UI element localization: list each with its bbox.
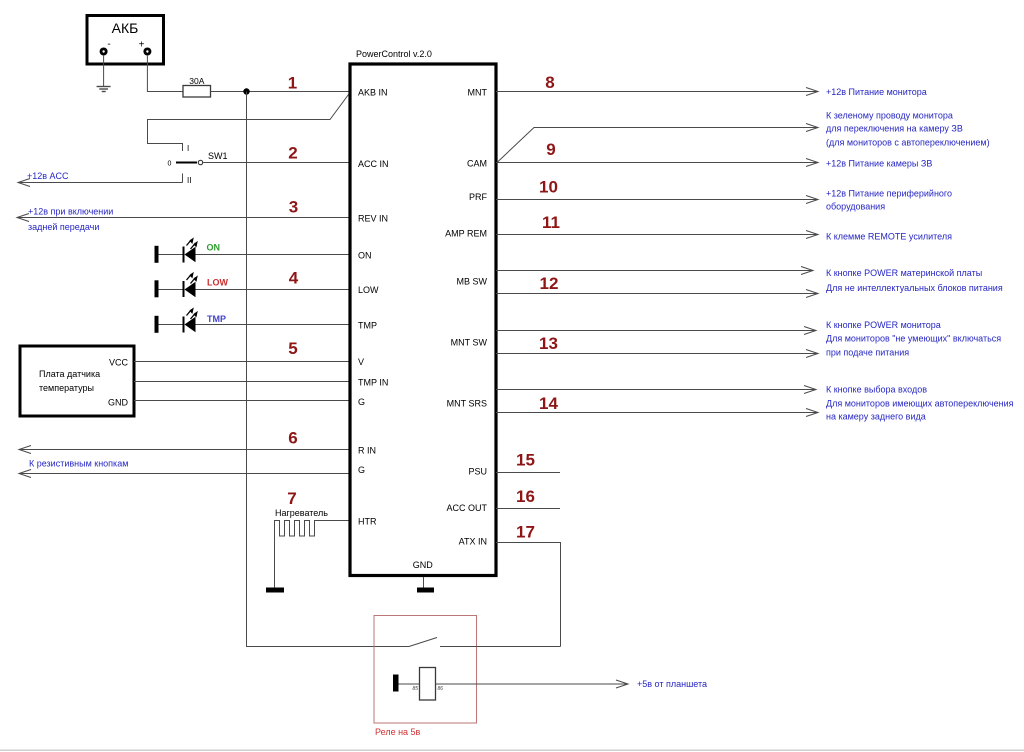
svg-text:К кнопке POWER монитора: К кнопке POWER монитора <box>826 320 941 330</box>
svg-text:8: 8 <box>545 73 554 92</box>
svg-text:+12в Питание периферийного: +12в Питание периферийного <box>826 189 952 199</box>
svg-text:+12в Питание камеры ЗВ: +12в Питание камеры ЗВ <box>826 159 932 169</box>
svg-text:ACC IN: ACC IN <box>358 159 389 169</box>
svg-text:85: 85 <box>412 686 418 692</box>
svg-text:GND: GND <box>413 560 434 570</box>
svg-text:TMP: TMP <box>207 314 226 324</box>
svg-text:VCC: VCC <box>109 358 129 368</box>
svg-text:CAM: CAM <box>467 159 487 169</box>
svg-text:12: 12 <box>540 274 559 293</box>
svg-text:AMP REM: AMP REM <box>445 229 487 239</box>
svg-text:11: 11 <box>542 213 560 232</box>
svg-text:7: 7 <box>287 489 296 508</box>
svg-text:задней передачи: задней передачи <box>28 222 99 232</box>
svg-text:+5в от планшета: +5в от планшета <box>637 679 707 689</box>
svg-text:17: 17 <box>516 523 535 542</box>
svg-text:4: 4 <box>289 269 299 288</box>
svg-text:II: II <box>187 176 191 185</box>
svg-text:ON: ON <box>207 243 221 253</box>
svg-text:Для мониторов "не умеющих" вкл: Для мониторов "не умеющих" включаться <box>826 334 1001 344</box>
svg-text:при подаче питания: при подаче питания <box>826 348 909 358</box>
svg-text:К кнопке выбора входов: К кнопке выбора входов <box>826 385 927 395</box>
svg-text:V: V <box>358 357 364 367</box>
svg-text:Реле на 5в: Реле на 5в <box>375 727 421 737</box>
svg-text:+12в ACC: +12в ACC <box>27 171 69 181</box>
svg-text:13: 13 <box>539 334 558 353</box>
svg-text:86: 86 <box>438 686 444 692</box>
svg-text:+: + <box>139 40 145 51</box>
svg-text:SW1: SW1 <box>208 151 228 161</box>
svg-text:К зеленому проводу монитора: К зеленому проводу монитора <box>826 111 953 121</box>
svg-text:2: 2 <box>288 144 297 163</box>
svg-text:REV IN: REV IN <box>358 214 388 224</box>
svg-text:Для не интеллектуальных блоков: Для не интеллектуальных блоков питания <box>826 283 1003 293</box>
svg-text:G: G <box>358 465 365 475</box>
svg-text:АКБ: АКБ <box>112 20 139 36</box>
svg-text:R IN: R IN <box>358 446 376 456</box>
svg-text:MNT: MNT <box>468 88 488 98</box>
svg-text:+12в при включении: +12в при включении <box>28 207 113 217</box>
svg-text:5: 5 <box>288 339 297 358</box>
svg-text:LOW: LOW <box>207 278 228 288</box>
svg-text:PowerControl v.2.0: PowerControl v.2.0 <box>356 49 432 59</box>
svg-text:HTR: HTR <box>358 517 377 527</box>
svg-text:для переключения на камеру ЗВ: для переключения на камеру ЗВ <box>826 124 963 134</box>
svg-text:оборудования: оборудования <box>826 202 885 212</box>
svg-text:30A: 30A <box>189 76 204 86</box>
svg-text:ATX IN: ATX IN <box>459 537 487 547</box>
svg-text:Нагреватель: Нагреватель <box>275 508 328 518</box>
svg-text:ON: ON <box>358 251 372 261</box>
svg-text:К резистивным кнопкам: К резистивным кнопкам <box>29 459 128 469</box>
svg-text:-: - <box>107 39 110 50</box>
svg-text:TMP: TMP <box>358 321 377 331</box>
svg-text:10: 10 <box>539 178 558 197</box>
svg-text:GND: GND <box>108 398 129 408</box>
svg-text:Для мониторов имеющих автопере: Для мониторов имеющих автопереключения <box>826 399 1014 409</box>
svg-text:3: 3 <box>289 198 298 217</box>
svg-text:15: 15 <box>516 451 535 470</box>
svg-text:PSU: PSU <box>468 467 487 477</box>
svg-text:0: 0 <box>168 161 172 168</box>
svg-text:LOW: LOW <box>358 285 379 295</box>
svg-text:16: 16 <box>516 487 535 506</box>
svg-text:температуры: температуры <box>39 383 94 393</box>
svg-text:AKB IN: AKB IN <box>358 88 388 98</box>
svg-text:G: G <box>358 397 365 407</box>
svg-text:9: 9 <box>546 140 555 159</box>
svg-text:Плата датчика: Плата датчика <box>39 369 100 379</box>
svg-text:+12в Питание монитора: +12в Питание монитора <box>826 87 927 97</box>
svg-text:PRF: PRF <box>469 192 488 202</box>
svg-text:ACC OUT: ACC OUT <box>447 503 488 513</box>
svg-text:на камеру заднего вида: на камеру заднего вида <box>826 412 926 422</box>
svg-text:(для мониторов с автопереключе: (для мониторов с автопереключением) <box>826 138 990 148</box>
svg-text:TMP IN: TMP IN <box>358 378 388 388</box>
svg-text:MNT SW: MNT SW <box>451 338 488 348</box>
svg-text:1: 1 <box>288 74 297 93</box>
svg-text:К клемме REMOTE усилителя: К клемме REMOTE усилителя <box>826 232 952 242</box>
svg-text:К кнопке POWER материнской пла: К кнопке POWER материнской платы <box>826 268 982 278</box>
svg-text:14: 14 <box>539 394 558 413</box>
svg-text:MB SW: MB SW <box>457 277 488 287</box>
svg-text:MNT SRS: MNT SRS <box>447 399 487 409</box>
svg-text:6: 6 <box>288 429 297 448</box>
svg-text:I: I <box>187 144 189 153</box>
